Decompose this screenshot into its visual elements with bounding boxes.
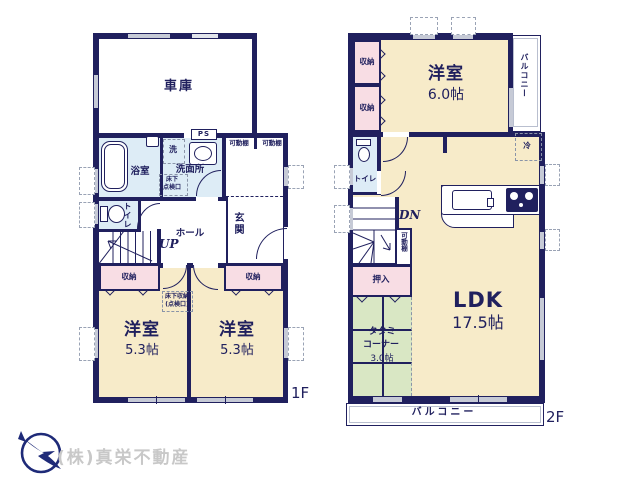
tatami-dashed-edge [411,297,412,396]
genkan-step-line [226,196,283,197]
label-closet-left: 収納 [122,273,137,281]
room-label-toilet: トイレ [123,202,131,229]
wall [252,33,257,136]
window [540,166,544,184]
window-dash [545,229,560,251]
wall [348,192,380,195]
room-label-bedroom-right: 洋室 [219,322,255,339]
label-up: UP [159,238,179,250]
room-label-entrance: 玄関 [232,212,242,236]
floorplan-canvas: 車庫 浴室 洗面所 洗 PS 床下 点検口 可動棚 可動棚 トイレ ホール UP… [0,0,640,480]
room-label-bedroom-left: 洋室 [124,322,160,339]
label-closet-top: 収納 [360,58,375,66]
window [373,397,402,402]
wall [93,33,257,39]
label-hatch-line1: 床下 [166,177,178,183]
window-dash [288,327,304,361]
label-washer: 洗 [169,146,177,154]
floor-label-2f: 2F [546,410,564,425]
stove [506,188,538,212]
burner [510,192,518,200]
window-dash [79,202,95,228]
window-tick [225,396,226,404]
toilet-tank [100,206,108,222]
room-label-hall: ホール [176,229,205,239]
wall [222,135,226,197]
bath-sink [146,136,159,147]
label-shelf-right: 可動棚 [262,140,282,147]
label-shelf-left: 可動棚 [229,140,249,147]
floor-label-1f: 1F [291,386,309,401]
label-dn: DN [399,209,420,221]
room-size-bedroom: 6.0帖 [428,88,464,102]
label-tatami-line1: タタミ [368,328,395,337]
window-tick [478,395,479,404]
window-dash [334,165,350,189]
wall [226,197,228,263]
label-balcony-bottom: バルコニー [412,408,477,418]
label-tatami-line2: コーナー [363,341,399,350]
toilet-tank [356,139,371,146]
room-label-ldk: LDK [453,290,503,311]
room-label-bedroom: 洋室 [428,66,464,83]
label-closet-right: 収納 [246,273,261,281]
kitchen-faucet [487,198,494,207]
wall [254,138,257,149]
room-size-bedroom-right: 5.3帖 [220,344,254,357]
label-hatch-line2: 点検口 [163,185,181,191]
window [94,75,98,108]
company-name: (株)真栄不動産 [57,450,191,467]
window-dash [79,167,95,195]
wall [218,197,226,201]
label-movable-shelf: 可動棚 [400,232,407,252]
burner-small [519,203,523,207]
window-tick [156,396,157,404]
kitchen-sink [452,190,492,210]
window-dash [410,17,438,35]
window-dash [79,327,95,361]
bathtub [101,141,128,192]
room-size-bedroom-left: 5.3帖 [125,344,159,357]
window [192,34,218,38]
washbasin [189,142,217,165]
room-label-bath: 浴室 [130,167,149,177]
window [540,232,544,249]
wall [93,197,196,201]
toilet-bowl [358,147,370,162]
room-label-garage: 車庫 [164,80,194,93]
staircase-up [98,231,158,265]
room-size-ldk: 17.5帖 [452,315,504,331]
staircase-down [353,197,395,263]
room-label-toilet: トイレ [354,175,377,183]
label-balcony-side: バルコニー [520,53,528,98]
wall [443,132,447,153]
room-label-washroom: 洗面所 [176,165,205,175]
wall [187,263,191,403]
label-closet-bottom: 収納 [360,104,375,112]
label-underfloor-line1: 床下収納 [165,294,189,300]
label-underfloor-line2: (点検口) [165,302,189,308]
window-dash [545,164,560,186]
window [128,34,170,38]
label-tatami-line3: 3.0帖 [370,355,393,364]
label-oshiire: 押入 [372,276,389,285]
window-dash [334,205,350,233]
window-dash [288,165,304,189]
balcony-door [509,88,513,127]
burner [525,192,533,200]
window [540,298,544,360]
label-ps: PS [198,131,210,138]
window-dash [451,17,476,35]
label-fridge: 冷 [523,142,531,150]
